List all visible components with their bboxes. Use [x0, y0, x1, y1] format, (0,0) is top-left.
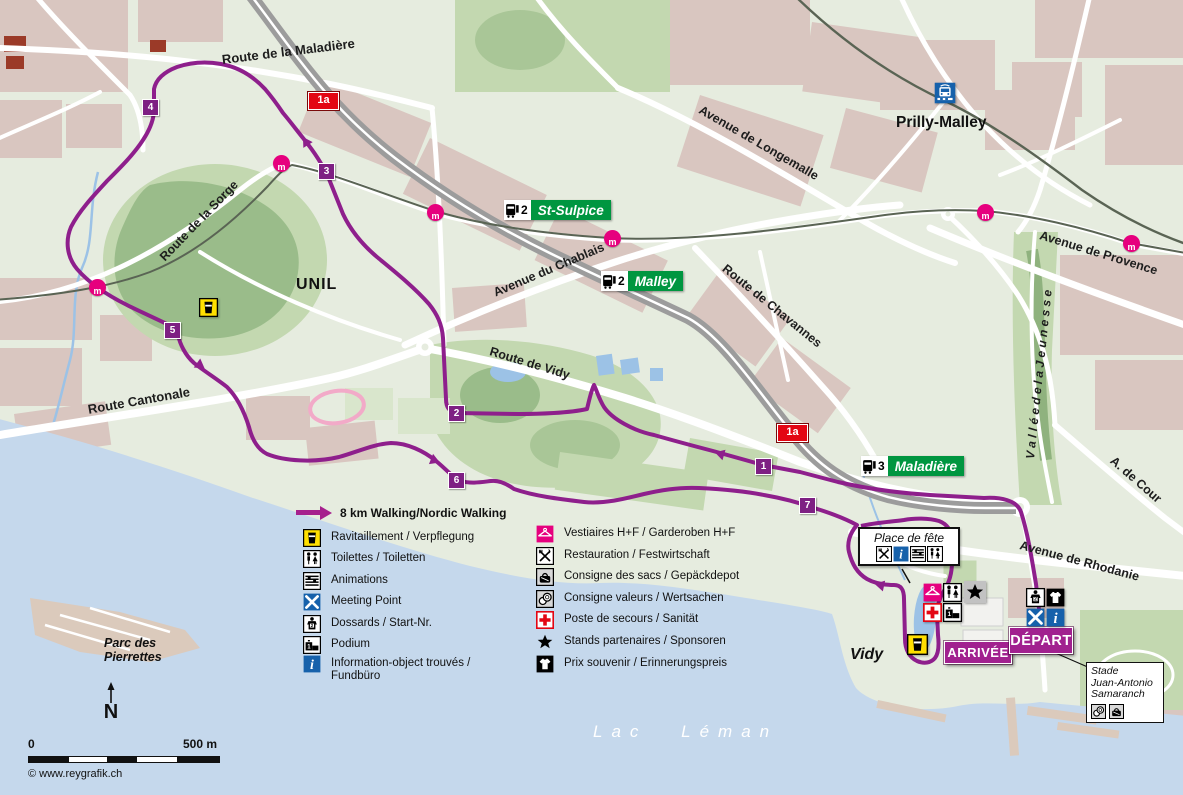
place-label-parc-des-pierrettes: Parc des Pierrettes	[104, 636, 162, 664]
road-badge-1a-2: 1a	[777, 424, 808, 442]
vestiaires-icon	[536, 525, 554, 543]
legend-item-vestiaires: Vestiaires H+F / Garderoben H+F	[536, 525, 735, 543]
place-de-fete-icons: i	[876, 546, 943, 562]
stade-samaranch-label: Stade Juan-Antonio Samaranch	[1091, 665, 1153, 700]
ravitaillement-map-icon	[907, 634, 928, 655]
stade-samaranch-box: Stade Juan-Antonio Samaranch	[1086, 662, 1164, 723]
prix-icon	[536, 655, 554, 673]
information-icon: i	[893, 546, 909, 562]
facility-cluster-2: 2i	[1026, 588, 1065, 627]
ravitaillement-icon	[199, 298, 218, 317]
lake-label: Lac Léman	[593, 722, 778, 742]
sacs-icon	[536, 568, 554, 586]
information-map-icon: i	[1046, 608, 1065, 627]
station-icon	[934, 82, 956, 104]
legend-item-label: Podium	[331, 636, 370, 651]
transit-stop-maladi-re: 3Maladière	[861, 456, 964, 476]
legend-item-secours: Poste de secours / Sanität	[536, 611, 698, 629]
transit-line-icon: 2	[601, 271, 628, 291]
transit-line-number: 2	[618, 274, 625, 288]
toilettes-icon	[943, 583, 962, 602]
svg-text:2: 2	[1034, 597, 1037, 603]
km-marker-2: 2	[448, 405, 465, 422]
toilettes-icon	[927, 546, 943, 562]
information-icon: i	[1046, 608, 1065, 627]
legend-item-label: Toilettes / Toiletten	[331, 550, 425, 565]
stade-samaranch-icons	[1091, 704, 1159, 719]
transit-stop-name: St-Sulpice	[531, 200, 611, 220]
km-marker-6: 6	[448, 472, 465, 489]
podium-icon: 1	[943, 603, 962, 622]
transit-line-icon: 2	[504, 200, 531, 220]
legend-item-label: Stands partenaires / Sponsoren	[564, 633, 726, 648]
scale-end-label: 500 m	[183, 737, 217, 751]
place-label-vidy: Vidy	[850, 646, 883, 664]
secours-icon	[536, 611, 554, 629]
km-marker-3: 3	[318, 163, 335, 180]
legend-item-ravitaillement: Ravitaillement / Verpflegung	[303, 529, 474, 547]
north-indicator: N	[96, 682, 126, 720]
facility-cluster-1: 1	[923, 583, 962, 622]
legend-item-information: iInformation-object trouvés / Fundbüro	[303, 655, 470, 682]
legend-item-label: Animations	[331, 572, 388, 587]
valeurs-icon	[1091, 704, 1106, 719]
ravitaillement-map-icon	[199, 298, 218, 317]
meeting-icon	[1026, 608, 1045, 627]
km-marker-4: 4	[142, 99, 159, 116]
road-badge-1a-1: 1a	[308, 92, 339, 110]
legend-item-label: Poste de secours / Sanität	[564, 611, 698, 626]
legend-item-label: Meeting Point	[331, 593, 401, 608]
km-marker-5: 5	[164, 322, 181, 339]
legend-item-valeurs: Consigne valeurs / Wertsachen	[536, 590, 724, 608]
restauration-icon	[536, 547, 554, 565]
arrivee-banner: ARRIVÉE	[944, 641, 1012, 664]
legend-item-label: Vestiaires H+F / Garderoben H+F	[564, 525, 735, 540]
podium-icon: 1	[303, 636, 321, 654]
legend-item-label: Ravitaillement / Verpflegung	[331, 529, 474, 544]
transit-stop-name: Malley	[628, 271, 683, 291]
station-map-icon	[934, 82, 956, 104]
svg-text:i: i	[899, 548, 903, 562]
train-icon	[505, 202, 520, 219]
scale-bar	[28, 756, 220, 763]
metro-station-dot-6: m	[1123, 235, 1140, 252]
legend-item-label: Restauration / Festwirtschaft	[564, 547, 710, 562]
legend-item-podium: 1Podium	[303, 636, 370, 654]
vestiaires-map-icon	[923, 583, 942, 602]
dossards-icon: 2	[303, 615, 321, 633]
transit-stop-malley: 2Malley	[601, 271, 683, 291]
place-de-fete-box: Place de fêtei	[858, 527, 960, 566]
km-marker-7: 7	[799, 497, 816, 514]
legend-item-label: Prix souvenir / Erinnerungspreis	[564, 655, 727, 670]
toilettes-icon	[303, 550, 321, 568]
svg-text:2: 2	[311, 623, 314, 629]
place-de-fete-label: Place de fête	[874, 531, 944, 545]
legend-item-dossards: 2Dossards / Start-Nr.	[303, 615, 432, 633]
transit-line-number: 2	[521, 203, 528, 217]
place-label-unil: UNIL	[296, 276, 337, 294]
animations-icon	[910, 546, 926, 562]
legend-item-toilettes: Toilettes / Toiletten	[303, 550, 425, 568]
dossards-icon: 2	[1026, 588, 1045, 607]
metro-station-dot-4: m	[604, 230, 621, 247]
north-letter: N	[96, 704, 126, 720]
legend-item-label: Consigne valeurs / Wertsachen	[564, 590, 724, 605]
transit-line-number: 3	[878, 459, 885, 473]
km-marker-1: 1	[755, 458, 772, 475]
secours-map-icon	[923, 603, 942, 622]
train-icon	[602, 273, 617, 290]
information-icon: i	[303, 655, 321, 673]
legend-item-label: Information-object trouvés / Fundbüro	[331, 655, 470, 682]
stands-map-icon	[964, 581, 986, 603]
toilettes-map-icon	[943, 583, 962, 602]
legend-item-label: Consigne des sacs / Gepäckdepot	[564, 568, 739, 583]
legend-item-prix: Prix souvenir / Erinnerungspreis	[536, 655, 727, 673]
meeting-icon	[303, 593, 321, 611]
animations-icon	[303, 572, 321, 590]
secours-icon	[923, 603, 942, 622]
meeting-map-icon	[1026, 608, 1045, 627]
legend-item-restauration: Restauration / Festwirtschaft	[536, 547, 710, 565]
ravitaillement-icon	[907, 634, 928, 655]
legend-item-sacs: Consigne des sacs / Gepäckdepot	[536, 568, 739, 586]
dossards-map-icon: 2	[1026, 588, 1045, 607]
place-label-prilly-malley: Prilly-Malley	[896, 114, 986, 132]
legend-item-animations: Animations	[303, 572, 388, 590]
transit-line-icon: 3	[861, 456, 888, 476]
sacs-icon	[1109, 704, 1124, 719]
transit-stop-st-sulpice: 2St-Sulpice	[504, 200, 611, 220]
prix-map-icon	[1046, 588, 1065, 607]
train-icon	[862, 458, 877, 475]
metro-station-dot-2: m	[273, 155, 290, 172]
podium-map-icon: 1	[943, 603, 962, 622]
legend-route-label: 8 km Walking/Nordic Walking	[340, 506, 506, 520]
course-map: Lac Léman N 0 500 m © www.reygrafik.ch 8…	[0, 0, 1183, 795]
scale-start-label: 0	[28, 737, 35, 751]
transit-stop-name: Maladière	[888, 456, 964, 476]
svg-text:i: i	[310, 658, 314, 673]
restauration-icon	[876, 546, 892, 562]
legend-item-stands: Stands partenaires / Sponsoren	[536, 633, 726, 651]
copyright: © www.reygrafik.ch	[28, 768, 122, 780]
metro-station-dot-3: m	[427, 204, 444, 221]
metro-station-dot-1: m	[89, 279, 106, 296]
vestiaires-icon	[923, 583, 942, 602]
valeurs-icon	[536, 590, 554, 608]
metro-station-dot-5: m	[977, 204, 994, 221]
stands-icon	[965, 582, 985, 602]
depart-banner: DÉPART	[1009, 627, 1073, 654]
stands-icon	[536, 633, 554, 651]
svg-text:1: 1	[947, 611, 951, 618]
ravitaillement-icon	[303, 529, 321, 547]
legend-item-meeting: Meeting Point	[303, 593, 401, 611]
route-arrow-icon	[296, 506, 334, 520]
legend-item-label: Dossards / Start-Nr.	[331, 615, 432, 630]
prix-icon	[1046, 588, 1065, 607]
